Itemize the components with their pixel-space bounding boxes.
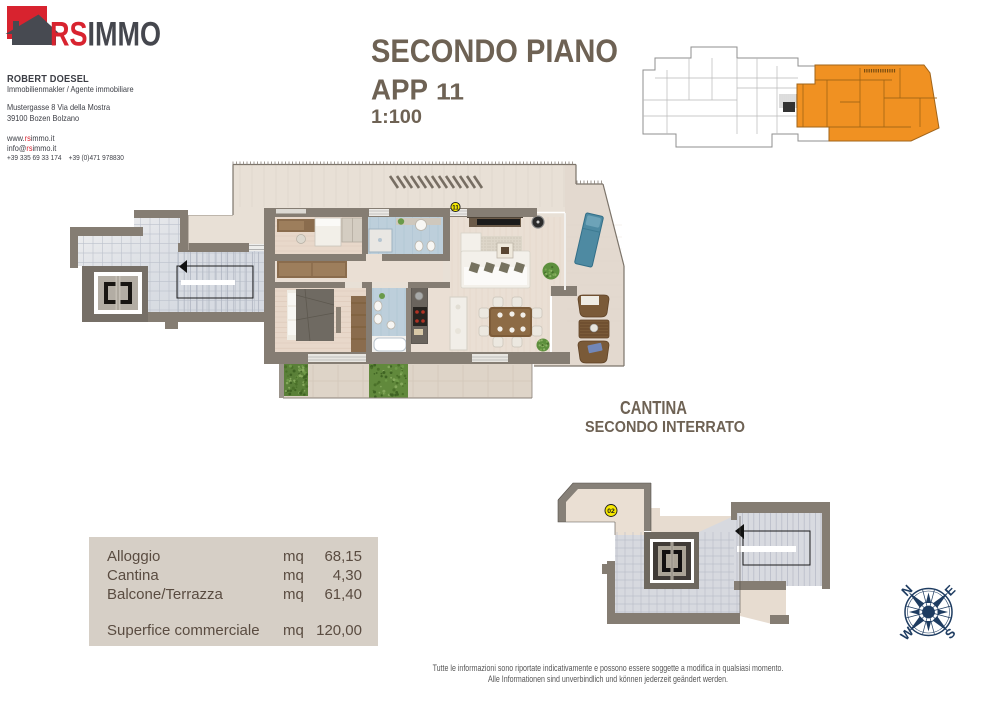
svg-text:02: 02 — [607, 508, 615, 515]
svg-text:APP: APP — [371, 75, 428, 107]
svg-text:11: 11 — [436, 79, 464, 105]
svg-text:S: S — [942, 625, 959, 642]
svg-text:1:100: 1:100 — [371, 107, 422, 128]
svg-text:SECONDO PIANO: SECONDO PIANO — [371, 33, 618, 69]
svg-text:SECONDO INTERRATO: SECONDO INTERRATO — [585, 419, 745, 436]
svg-text:11: 11 — [452, 204, 459, 211]
